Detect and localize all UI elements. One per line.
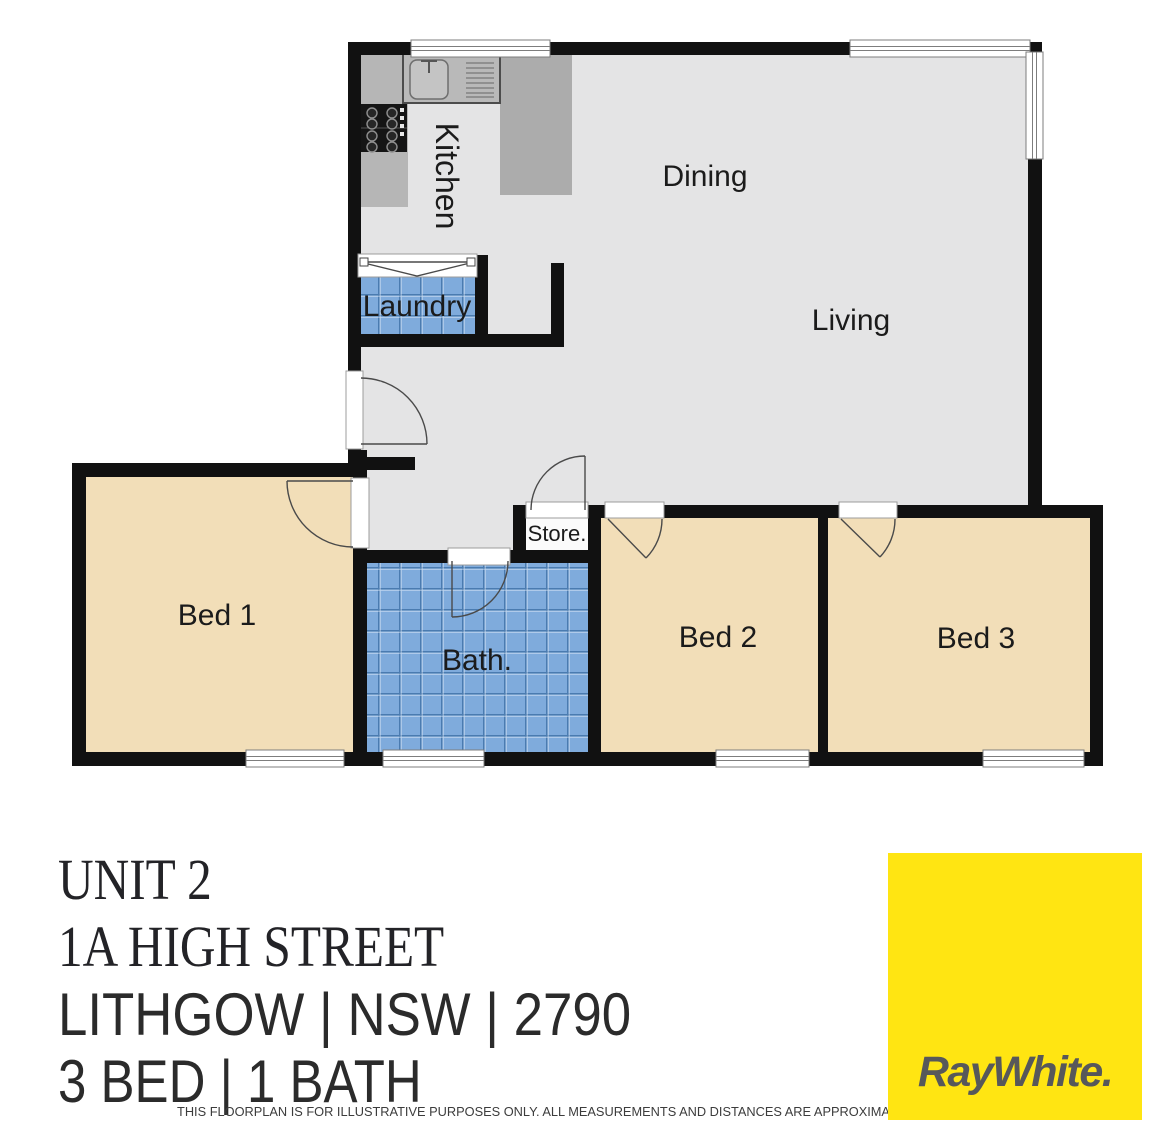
- wall-segment: [588, 505, 601, 766]
- wall-segment: [818, 518, 828, 752]
- room-label-bath: Bath.: [442, 646, 512, 676]
- wall-segment: [353, 550, 450, 563]
- kitchen-bench-block: [500, 55, 572, 195]
- room-label-kitchen: Kitchen: [431, 123, 463, 230]
- room-label-dining: Dining: [662, 162, 747, 192]
- wall-segment: [662, 505, 841, 518]
- wall-segment: [548, 42, 852, 55]
- wall-segment: [72, 463, 86, 766]
- bed1-door-frame: [351, 478, 369, 548]
- wall-segment: [72, 463, 367, 477]
- raywhite-logo-text: RayWhite.: [888, 1051, 1142, 1094]
- wall-segment: [807, 752, 985, 766]
- bifold-jamb: [360, 258, 368, 266]
- bifold-jamb: [467, 258, 475, 266]
- wall-segment: [348, 42, 361, 373]
- wall-segment: [895, 505, 1103, 518]
- bed3-door-frame: [839, 502, 897, 518]
- floorplan-drawing: [0, 0, 1171, 800]
- entry-door-frame: [346, 371, 363, 449]
- room-label-bed3: Bed 3: [937, 624, 1015, 654]
- room-label-living: Living: [812, 306, 890, 336]
- wall-segment: [588, 505, 607, 518]
- wall-segment: [551, 263, 564, 347]
- wall-segment: [1028, 158, 1042, 518]
- hallway-floor: [367, 470, 513, 552]
- property-features: 3 BED | 1 BATH: [58, 1052, 422, 1112]
- property-unit: UNIT 2: [58, 851, 212, 909]
- room-label-store: Store.: [528, 523, 587, 545]
- wall-segment: [508, 550, 601, 563]
- floorplan-page: Kitchen Dining Living Laundry Bed 1 Bath…: [0, 0, 1171, 1141]
- bed2-door-frame: [605, 502, 664, 518]
- room-label-laundry: Laundry: [363, 292, 471, 322]
- property-locality: LITHGOW | NSW | 2790: [58, 985, 631, 1045]
- wall-segment: [1090, 505, 1103, 766]
- raywhite-logo: RayWhite.: [888, 853, 1142, 1120]
- wall-segment: [353, 546, 367, 766]
- property-street: 1A HIGH STREET: [58, 918, 444, 976]
- wall-segment: [348, 334, 564, 347]
- wall-segment: [513, 505, 526, 550]
- store-door-frame: [526, 502, 588, 518]
- wall-segment: [353, 450, 367, 480]
- bath-door-frame: [448, 548, 510, 565]
- room-label-bed2: Bed 2: [679, 623, 757, 653]
- wall-segment: [342, 752, 385, 766]
- room-label-bed1: Bed 1: [178, 601, 256, 631]
- wall-segment: [72, 752, 248, 766]
